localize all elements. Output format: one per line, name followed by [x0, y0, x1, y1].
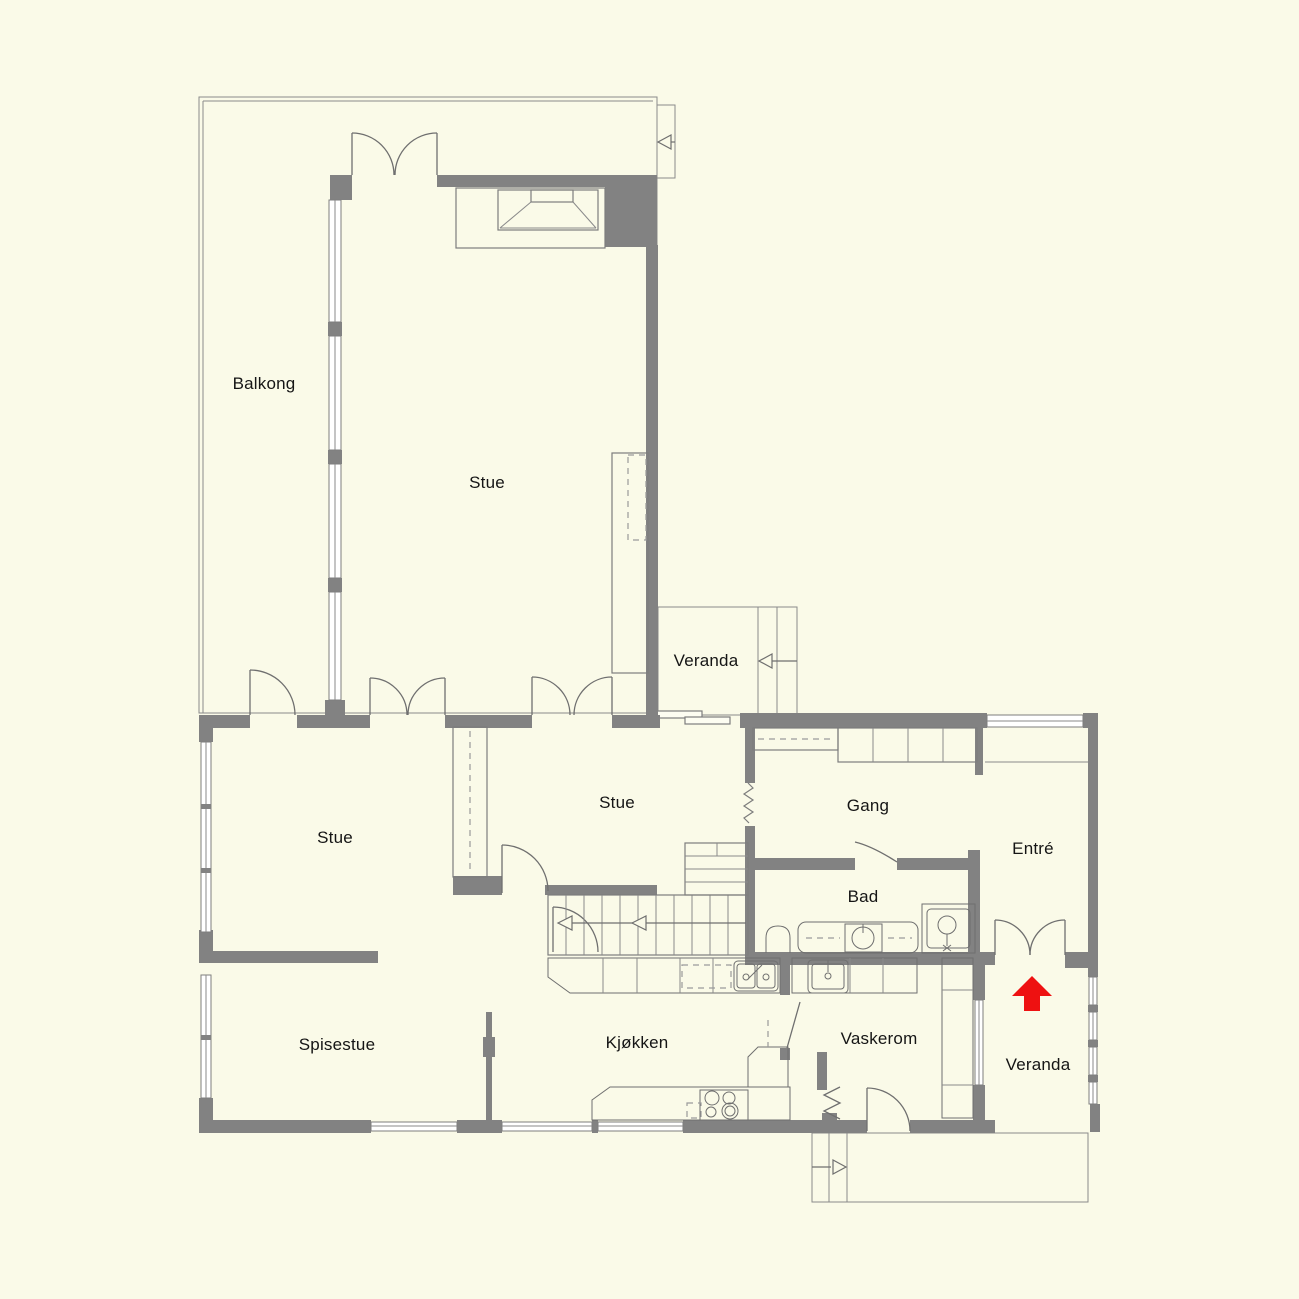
room-label-bad: Bad [848, 887, 879, 907]
window-strip [329, 200, 341, 700]
double-sink-icon [734, 961, 778, 991]
door-kjokken-stue [502, 845, 548, 893]
wall-break-squiggle [744, 783, 753, 823]
wc-icon [766, 926, 790, 953]
double-door-stue-middle [532, 677, 612, 715]
door-balcony [250, 670, 295, 715]
room-label-gang: Gang [847, 796, 889, 816]
room-label-balkong: Balkong [233, 374, 296, 394]
shower-icon [922, 904, 975, 953]
room-label-spisestue: Spisestue [299, 1035, 375, 1055]
double-door-entre [995, 920, 1065, 955]
platform-steps-arrow-icon [833, 1160, 846, 1174]
room-label-entre: Entré [1012, 839, 1054, 859]
kitchen-fixtures [548, 958, 790, 1120]
fireplace [456, 188, 605, 248]
room-label-veranda-lower: Veranda [1006, 1055, 1071, 1075]
dishwasher [682, 965, 731, 988]
sliding-door-veranda [612, 453, 648, 673]
rear-platform-outline [812, 1133, 1088, 1202]
door-kjokken-vaskerom [787, 1002, 800, 1048]
room-label-kjokken: Kjøkken [606, 1033, 669, 1053]
door-stairs [553, 907, 598, 952]
room-label-veranda-upper: Veranda [674, 651, 739, 671]
entrance-arrow-icon [1012, 976, 1052, 1011]
balcony-outline [199, 97, 675, 713]
balcony-stair-arrow-icon [658, 135, 671, 149]
room-label-stue-left: Stue [317, 828, 353, 848]
veranda-steps-arrow-icon [759, 654, 772, 668]
door-bad [855, 842, 897, 862]
double-door-stue-north [352, 133, 437, 175]
door-vaskerom-rear [867, 1088, 910, 1131]
stair-arrow-icon [558, 916, 572, 930]
staircase [548, 843, 748, 955]
room-label-stue-middle: Stue [599, 793, 635, 813]
double-door-stue-left [370, 678, 445, 715]
room-label-stue-upper: Stue [469, 473, 505, 493]
floor-plan-canvas: Balkong Stue Veranda Stue Stue Gang Entr… [0, 0, 1299, 1299]
sliding-door-pocket [453, 727, 487, 877]
stair-arrow-icon [632, 916, 646, 930]
stove-icon [705, 1091, 738, 1119]
wardrobes [753, 728, 1088, 762]
room-label-vaskerom: Vaskerom [841, 1029, 918, 1049]
floor-plan-drawing [0, 0, 1299, 1299]
laundry-cabinets [942, 958, 973, 1118]
bathroom-fixtures [766, 904, 975, 953]
